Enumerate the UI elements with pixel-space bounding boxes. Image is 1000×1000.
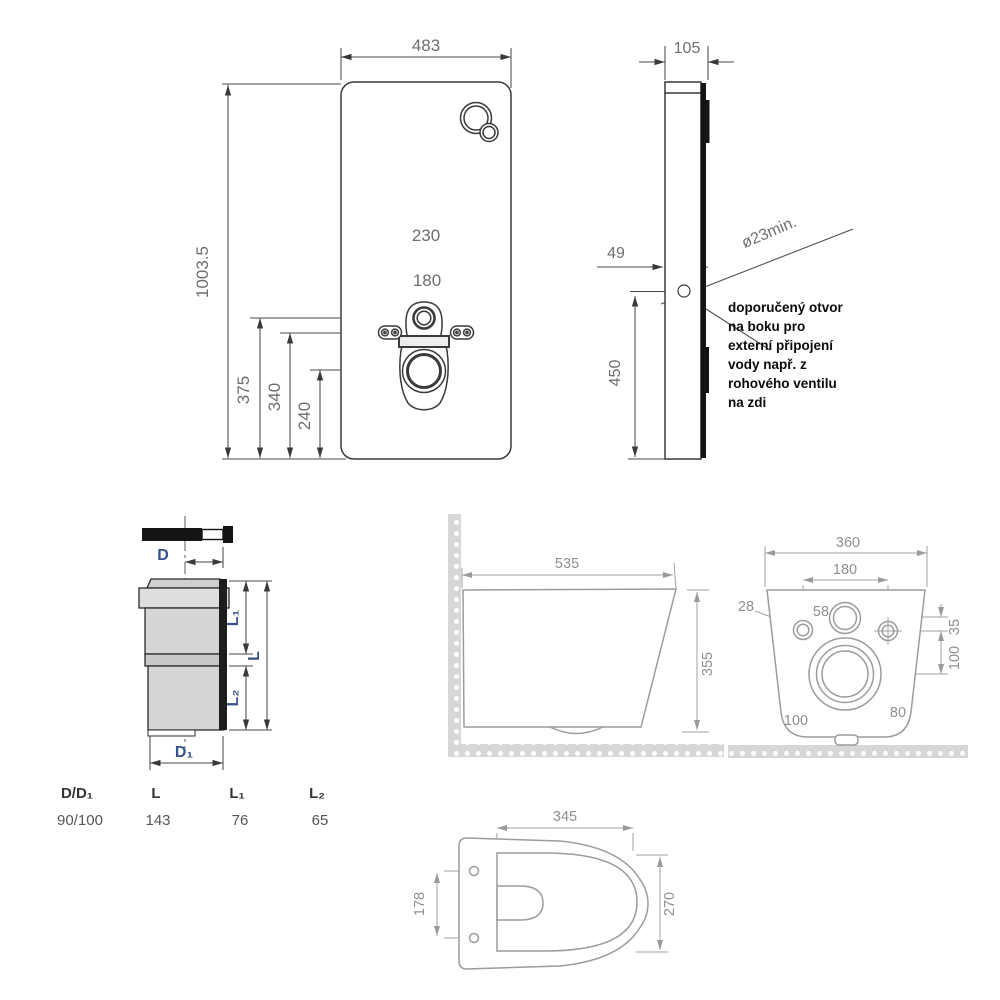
seat-bolt-hole-top [470, 867, 479, 876]
floor-hatch-back [728, 745, 968, 758]
spigot-bar-light [202, 530, 223, 540]
lower-bracket [705, 347, 710, 393]
bolt-spacing-inner-label: 180 [413, 271, 441, 290]
side-view-dimensions [597, 46, 853, 459]
wc-inlet-dia-label: 58 [813, 604, 829, 620]
drain-height-label: 240 [295, 402, 314, 430]
wc-profile [463, 589, 676, 727]
side-water-hole [678, 285, 690, 297]
drain-adapter-view: D L₁ L₂ L D₁ [139, 516, 272, 770]
spigot-cap [223, 526, 233, 543]
spigot-bar-dark [142, 528, 202, 541]
left-bolt-pad [379, 326, 402, 339]
pipe-dim-d-label: D [157, 547, 169, 564]
pipe-dim-d1-label: D₁ [175, 744, 194, 761]
wc-back-view: 360 180 28 58 80 100 35 100 [728, 535, 968, 758]
wc-back-width-label: 360 [836, 535, 860, 551]
upper-body [145, 608, 224, 654]
wc-top-view: 345 270 178 [412, 809, 678, 969]
bolt-height-label: 340 [265, 383, 284, 411]
bolt-spacing-outer-label: 230 [412, 226, 440, 245]
wc-height-label: 355 [700, 652, 716, 676]
pipe-dim-l2-label: L₂ [225, 690, 242, 707]
inlet-height-label: 375 [234, 376, 253, 404]
pipe-foot [148, 730, 195, 736]
note-line-6: na zdi [728, 395, 766, 410]
pipe-dim-l1-label: L₁ [225, 609, 242, 626]
hole-offset-label: 49 [607, 245, 625, 262]
wc-side-geometry [463, 589, 676, 734]
socket-collar [139, 588, 229, 608]
pipe-dimension-table: D/D₁ L L₁ L₂ 90/100 143 76 65 [57, 785, 328, 829]
joint-ring [145, 654, 224, 666]
note-line-1: doporučený otvor [728, 300, 844, 315]
wc-bolt-hole-dia-label: 28 [738, 599, 754, 615]
table-header-l1: L₁ [229, 785, 244, 802]
pipe-dim-l-label: L [246, 651, 263, 661]
bowl-width-label: 270 [662, 892, 678, 916]
table-header-l: L [151, 785, 160, 802]
seat-bolt-hole-bottom [470, 934, 479, 943]
upper-bracket [705, 100, 710, 143]
table-header-l2: L₂ [309, 785, 325, 802]
table-value-l: 143 [145, 812, 170, 829]
wc-side-view: 535 355 [448, 514, 724, 757]
wc-drain-outer-label: 100 [784, 713, 808, 729]
front-height-label: 1003.5 [193, 246, 212, 298]
note-line-2: na boku pro [728, 319, 805, 334]
back-left-bolt-hole [794, 621, 813, 640]
table-value-dd1: 90/100 [57, 812, 103, 829]
bowl-length-label: 345 [553, 809, 577, 825]
drain-flange [399, 336, 449, 347]
module-front-view: 483 1003.5 230 180 375 340 240 [193, 36, 511, 459]
note-line-3: externí připojení [728, 338, 834, 353]
seat-bolt-spacing-label: 178 [412, 892, 428, 916]
side-note-text: doporučený otvor na boku pro externí při… [728, 300, 844, 410]
wc-length-label: 535 [555, 556, 579, 572]
technical-drawing-sheet: 483 1003.5 230 180 375 340 240 [0, 0, 1000, 1000]
wc-back-drain-tab [835, 735, 858, 745]
note-line-5: rohového ventilu [728, 376, 837, 391]
wc-top-geometry [459, 838, 648, 969]
pipe-geometry [139, 526, 233, 736]
hole-height-label: 450 [607, 360, 624, 387]
hole-diameter-label: ø23min. [739, 214, 799, 252]
table-value-l2: 65 [312, 812, 329, 829]
floor-hatch-side [448, 744, 724, 757]
back-drain-outer [809, 638, 881, 710]
side-view-geometry [665, 82, 710, 459]
wc-back-bolt-spacing-label: 180 [833, 562, 857, 578]
drawing-svg: 483 1003.5 230 180 375 340 240 [0, 0, 1000, 1000]
right-bolt-pad [451, 326, 474, 339]
module-side-panel [665, 82, 701, 459]
lower-body [148, 666, 224, 730]
wc-drain-arc [550, 727, 603, 734]
bowl-water-outline [497, 886, 543, 920]
front-width-label: 483 [412, 36, 440, 55]
table-header-dd1: D/D₁ [61, 785, 93, 802]
wc-inlet-offset-label: 35 [947, 619, 963, 635]
side-depth-label: 105 [674, 40, 701, 57]
note-line-4: vody např. z [728, 357, 807, 372]
wc-drain-inner-label: 80 [890, 705, 906, 721]
wc-drain-offset-label: 100 [947, 646, 963, 670]
socket-rim [147, 579, 224, 588]
table-value-l1: 76 [232, 812, 249, 829]
module-side-view: 105 49 450 ø23min. doporučený otvor na b… [597, 40, 853, 459]
wall-hatch [448, 514, 461, 757]
